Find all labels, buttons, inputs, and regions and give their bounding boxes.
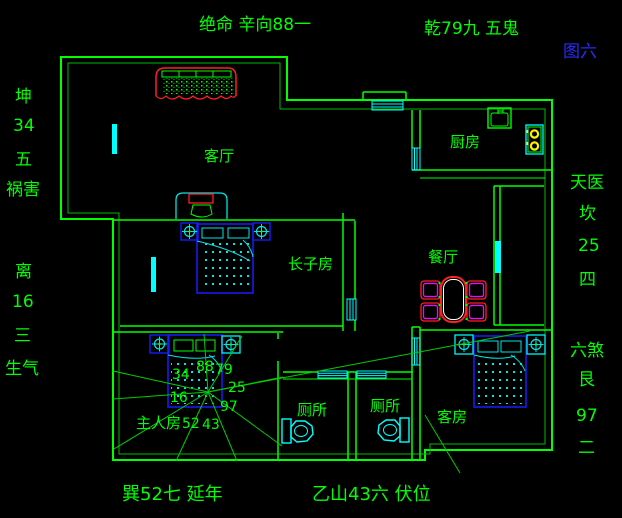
annotation-tianyi: 天医 xyxy=(570,173,604,193)
room-label-eldest-son: 长子房 xyxy=(288,255,333,273)
living-left-window xyxy=(112,124,117,154)
annotation-kan-rank: 四 xyxy=(579,270,596,290)
eldest-left-window xyxy=(151,257,156,292)
cad-floorplan-screenshot: 88 79 34 25 16 97 52 43 客厅 厨房 餐厅 长子房 主人房… xyxy=(0,0,622,518)
annotation-top-right: 乾79九 五鬼 xyxy=(424,19,519,39)
fs-number-n: 88 xyxy=(196,359,214,375)
annotation-huohai: 祸害 xyxy=(6,180,40,200)
annotation-bottom-right: 乙山43六 伏位 xyxy=(312,484,431,505)
annotation-liusha: 六煞 xyxy=(570,341,604,361)
room-label-toilet1: 厕所 xyxy=(297,401,327,419)
room-label-kitchen: 厨房 xyxy=(450,133,480,151)
room-label-living: 客厅 xyxy=(204,147,234,165)
fs-number-sw: 16 xyxy=(170,390,188,406)
annotation-kun-rank: 五 xyxy=(15,150,32,170)
annotation-li: 离 xyxy=(15,262,32,282)
annotation-bottom-left: 巽52七 延年 xyxy=(122,484,223,505)
fs-number-se: 97 xyxy=(220,399,238,415)
fs-number-e: 25 xyxy=(228,380,246,396)
room-label-master: 主人房 xyxy=(136,414,181,432)
room-label-toilet2: 厕所 xyxy=(370,397,400,415)
plant-dots xyxy=(163,78,233,94)
fs-number-s-right: 43 xyxy=(202,417,220,433)
annotation-shengqi: 生气 xyxy=(5,359,39,379)
annotation-kan: 坎 xyxy=(579,204,596,224)
fs-number-ne: 79 xyxy=(215,362,233,378)
room-label-dining: 餐厅 xyxy=(428,248,458,266)
annotation-gen-number: 97 xyxy=(576,406,598,426)
fs-number-s-left: 52 xyxy=(182,416,200,432)
shaft-window xyxy=(495,241,501,273)
room-label-guest: 客房 xyxy=(437,408,467,426)
annotation-kun: 坤 xyxy=(15,87,32,107)
annotation-gen-rank: 二 xyxy=(578,438,595,458)
annotation-kun-number: 34 xyxy=(13,116,35,136)
annotation-top-left: 绝命 辛向88一 xyxy=(199,15,311,35)
fs-number-w: 34 xyxy=(172,367,190,383)
annotation-kan-number: 25 xyxy=(578,236,600,256)
floor-plan-canvas: 88 79 34 25 16 97 52 43 客厅 厨房 餐厅 长子房 主人房… xyxy=(0,0,622,518)
annotation-gen: 艮 xyxy=(578,370,595,390)
annotation-li-number: 16 xyxy=(12,292,34,312)
figure-number-label: 图六 xyxy=(563,42,597,62)
annotation-li-rank: 三 xyxy=(14,326,31,346)
